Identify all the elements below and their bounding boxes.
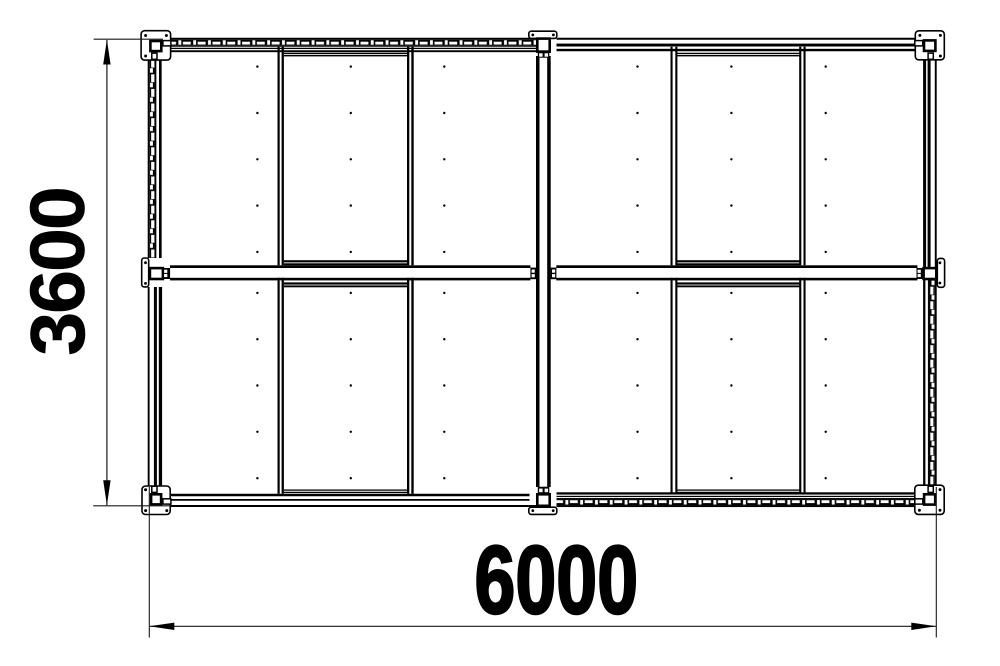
svg-text:3600: 3600 — [14, 188, 101, 356]
svg-text:6000: 6000 — [475, 526, 639, 634]
